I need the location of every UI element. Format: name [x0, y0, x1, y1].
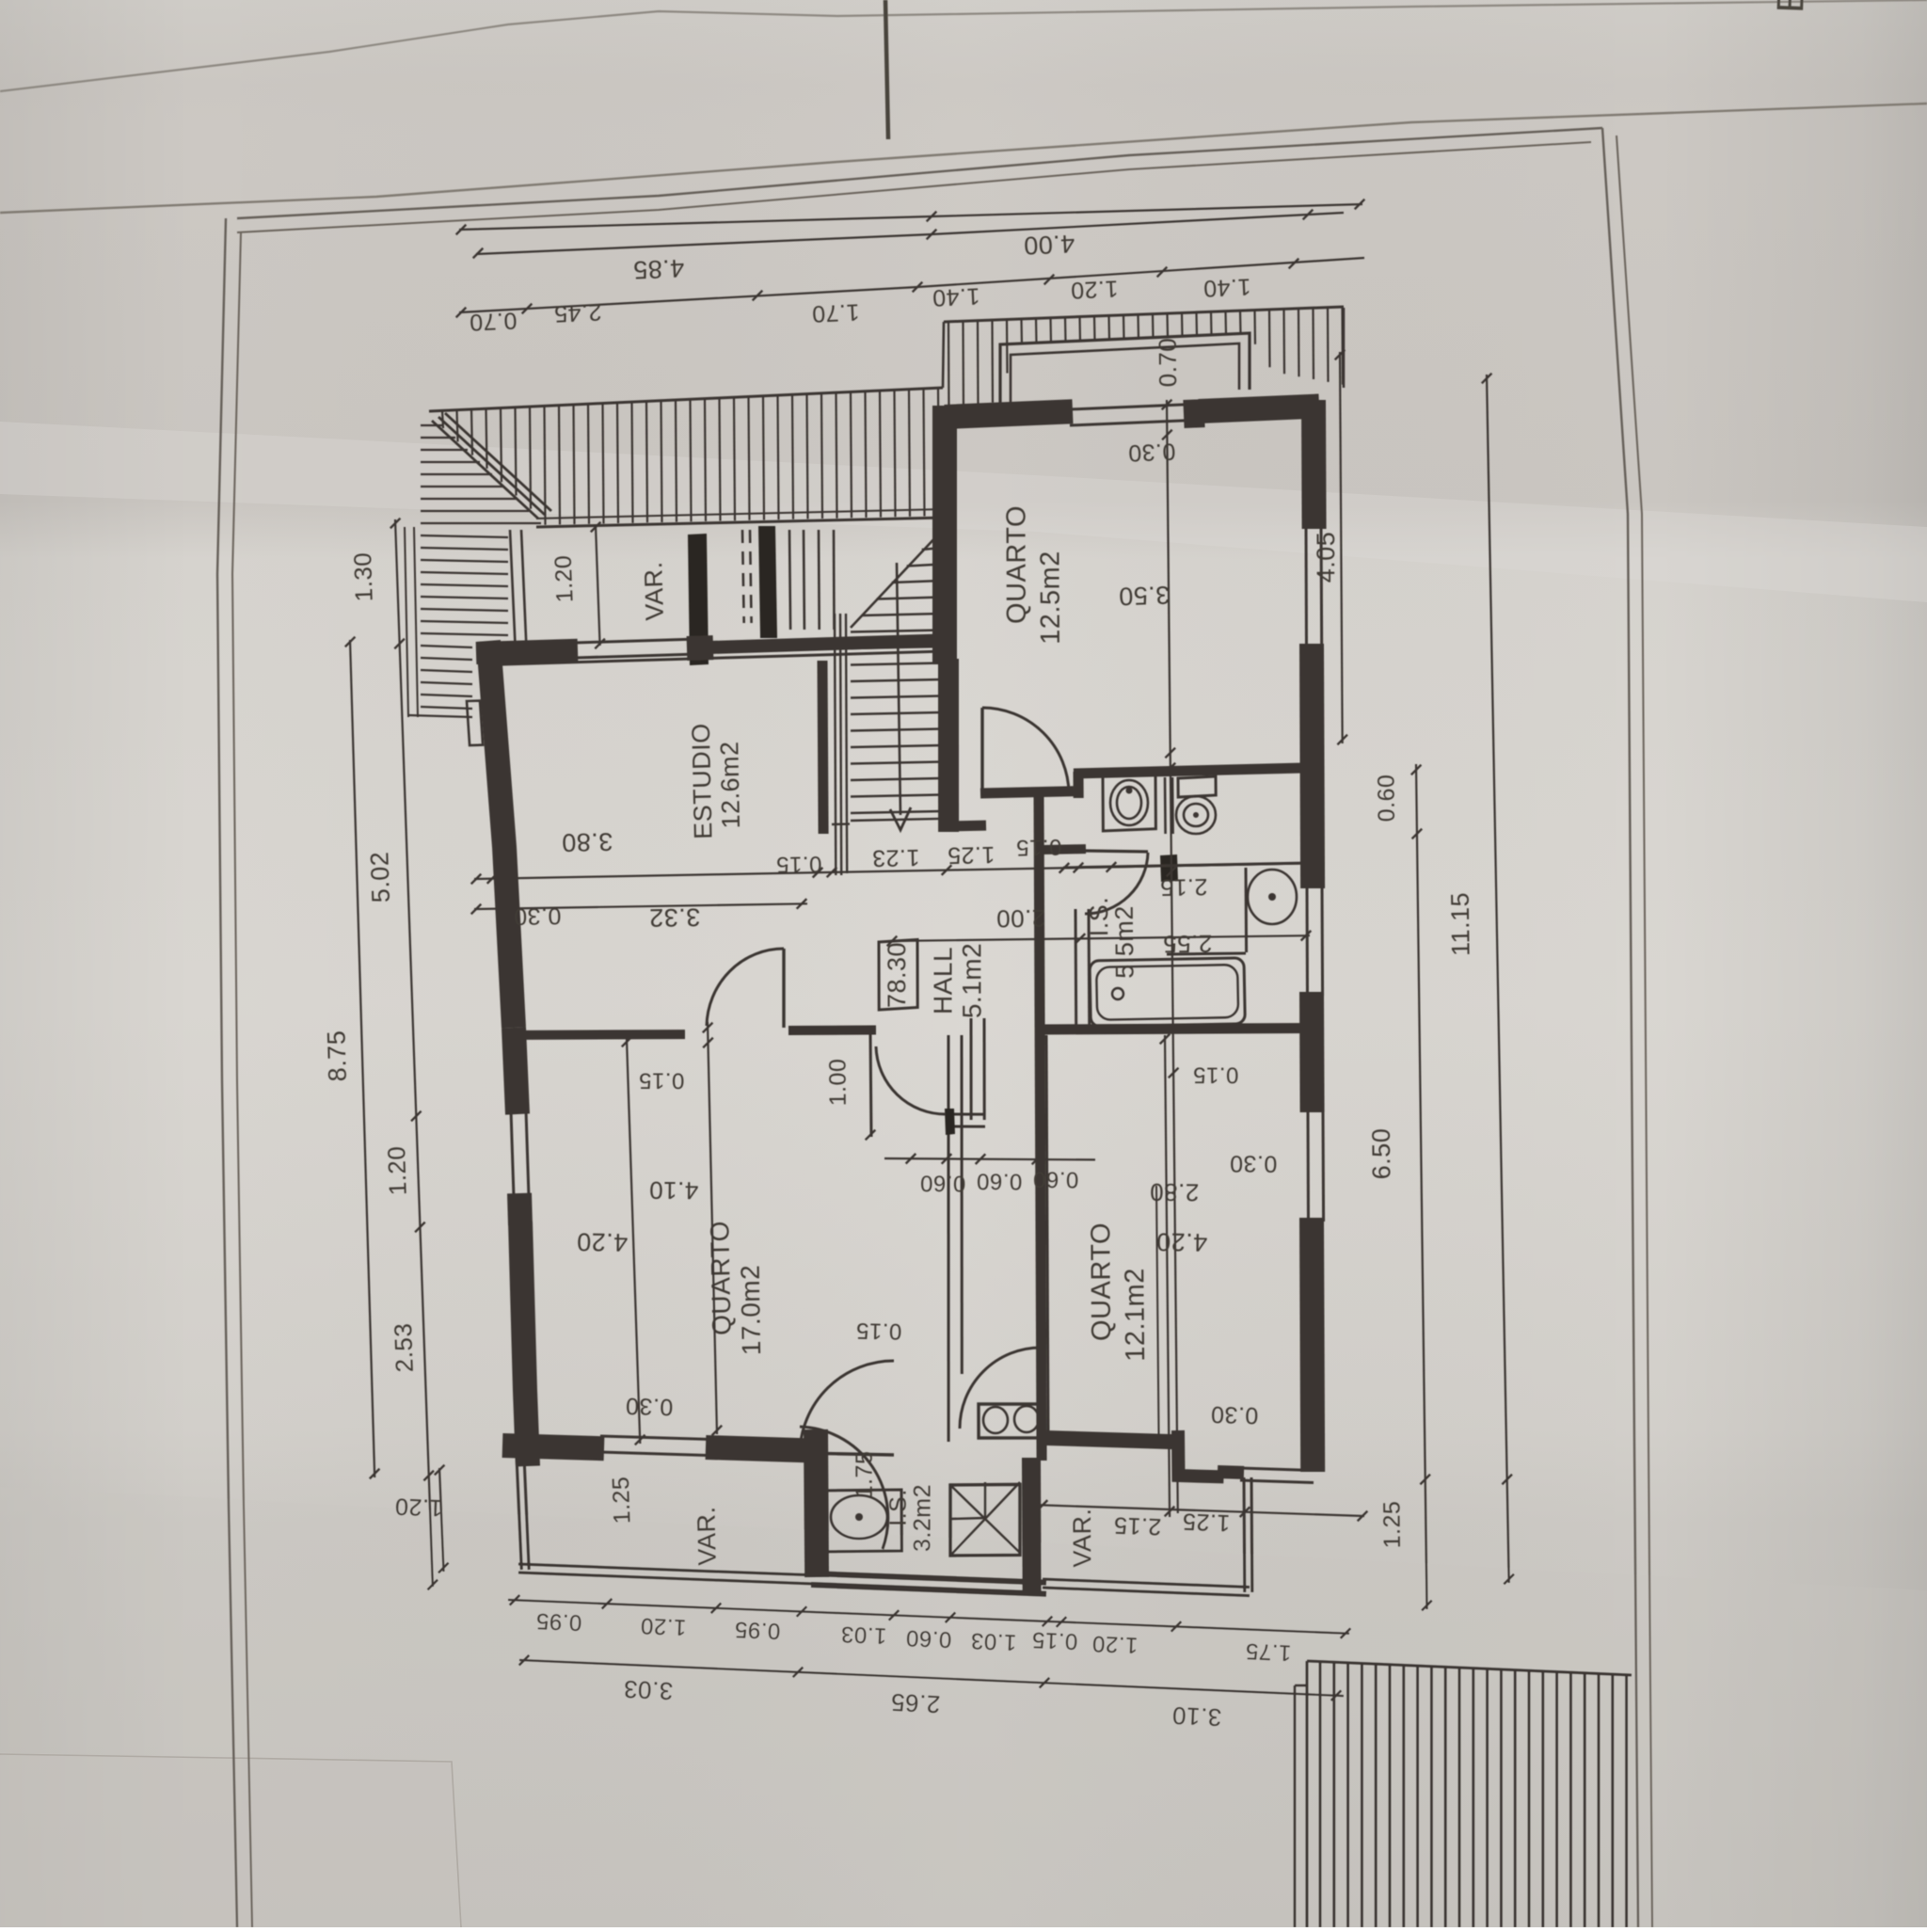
svg-text:4.10: 4.10 [649, 1176, 699, 1205]
svg-text:12.5m2: 12.5m2 [1035, 551, 1066, 645]
svg-text:0.15: 0.15 [639, 1068, 685, 1094]
svg-text:5.5m2: 5.5m2 [1110, 905, 1139, 979]
svg-text:1.00: 1.00 [824, 1059, 851, 1107]
svg-text:4.85: 4.85 [632, 254, 685, 285]
svg-text:3.10: 3.10 [1171, 1701, 1222, 1732]
svg-text:0.95: 0.95 [734, 1617, 781, 1644]
svg-text:5.1m2: 5.1m2 [957, 943, 986, 1018]
svg-text:4.00: 4.00 [1023, 230, 1075, 261]
svg-text:1.25: 1.25 [1182, 1509, 1231, 1537]
svg-text:0.70: 0.70 [1154, 338, 1183, 388]
svg-text:0.95: 0.95 [535, 1608, 582, 1636]
svg-text:0.15: 0.15 [775, 851, 821, 877]
svg-text:1.75: 1.75 [1245, 1638, 1292, 1666]
svg-text:1.75: 1.75 [852, 1451, 878, 1499]
svg-text:HALL: HALL [928, 947, 957, 1014]
svg-text:ESTUDIO: ESTUDIO [687, 723, 718, 839]
svg-text:12.6m2: 12.6m2 [715, 741, 745, 829]
svg-text:2.00: 2.00 [995, 904, 1045, 934]
svg-text:E: E [1770, 0, 1812, 13]
svg-text:2.53: 2.53 [389, 1322, 419, 1373]
svg-text:QUARTO: QUARTO [705, 1221, 737, 1335]
svg-text:0.60: 0.60 [1033, 1166, 1079, 1191]
svg-text:3.32: 3.32 [649, 902, 701, 932]
svg-text:0.15: 0.15 [1193, 1062, 1239, 1088]
svg-text:0.15: 0.15 [855, 1317, 901, 1344]
svg-text:4.20: 4.20 [1155, 1227, 1207, 1256]
svg-text:I.S.: I.S. [885, 1489, 912, 1526]
svg-text:8.75: 8.75 [322, 1030, 352, 1081]
svg-text:VAR.: VAR. [1068, 1508, 1096, 1567]
svg-text:3.50: 3.50 [1118, 581, 1171, 611]
svg-text:1.23: 1.23 [871, 844, 919, 871]
svg-text:1.25: 1.25 [608, 1476, 636, 1525]
svg-text:1.03: 1.03 [840, 1621, 887, 1649]
svg-text:78.30: 78.30 [883, 942, 911, 1008]
svg-text:0.70: 0.70 [469, 307, 518, 335]
svg-text:1.70: 1.70 [811, 298, 860, 327]
svg-text:0.15: 0.15 [1015, 834, 1061, 860]
svg-text:2.65: 2.65 [890, 1688, 941, 1718]
svg-text:1.40: 1.40 [932, 282, 980, 311]
svg-text:0.30: 0.30 [1127, 438, 1176, 466]
svg-text:0.60: 0.60 [977, 1168, 1023, 1193]
svg-text:4.20: 4.20 [576, 1227, 628, 1256]
svg-text:2.55: 2.55 [1163, 930, 1213, 959]
svg-text:3.2m2: 3.2m2 [910, 1484, 936, 1552]
svg-text:QUARTO: QUARTO [1086, 1222, 1117, 1341]
svg-text:1.20: 1.20 [550, 554, 579, 603]
svg-text:1.25: 1.25 [947, 841, 995, 869]
svg-text:2.15: 2.15 [1159, 873, 1207, 901]
svg-text:0.15: 0.15 [1031, 1627, 1078, 1654]
svg-text:2.45: 2.45 [553, 298, 602, 327]
svg-text:1.30: 1.30 [348, 551, 378, 602]
svg-text:17.0m2: 17.0m2 [736, 1265, 767, 1356]
svg-text:1.20: 1.20 [1091, 1631, 1139, 1658]
svg-text:3.03: 3.03 [623, 1675, 674, 1705]
svg-text:QUARTO: QUARTO [1001, 505, 1031, 624]
svg-text:3.80: 3.80 [561, 827, 613, 856]
svg-text:0.30: 0.30 [625, 1393, 673, 1420]
svg-text:0.60: 0.60 [920, 1170, 966, 1195]
svg-text:1.40: 1.40 [1202, 273, 1251, 301]
svg-text:0.60: 0.60 [905, 1625, 952, 1653]
svg-text:12.1m2: 12.1m2 [1120, 1268, 1151, 1362]
svg-text:0.30: 0.30 [1210, 1401, 1258, 1429]
svg-text:2.15: 2.15 [1113, 1512, 1162, 1541]
svg-text:VAR.: VAR. [692, 1506, 721, 1566]
svg-text:0.60: 0.60 [1373, 774, 1400, 822]
svg-text:1.20: 1.20 [394, 1493, 443, 1522]
svg-text:1.20: 1.20 [640, 1613, 687, 1640]
svg-text:6.50: 6.50 [1367, 1128, 1396, 1180]
svg-text:0.30: 0.30 [1230, 1150, 1278, 1176]
svg-text:11.15: 11.15 [1446, 892, 1475, 957]
svg-text:4.05: 4.05 [1312, 532, 1340, 583]
svg-text:VAR.: VAR. [639, 561, 669, 621]
svg-text:1.25: 1.25 [1378, 1501, 1406, 1549]
svg-text:1.20: 1.20 [382, 1145, 412, 1196]
svg-text:1.03: 1.03 [970, 1628, 1017, 1655]
svg-text:5.02: 5.02 [365, 851, 395, 903]
svg-text:0.30: 0.30 [513, 902, 561, 930]
svg-text:I.S.: I.S. [1085, 897, 1113, 937]
svg-text:1.20: 1.20 [1070, 275, 1119, 303]
